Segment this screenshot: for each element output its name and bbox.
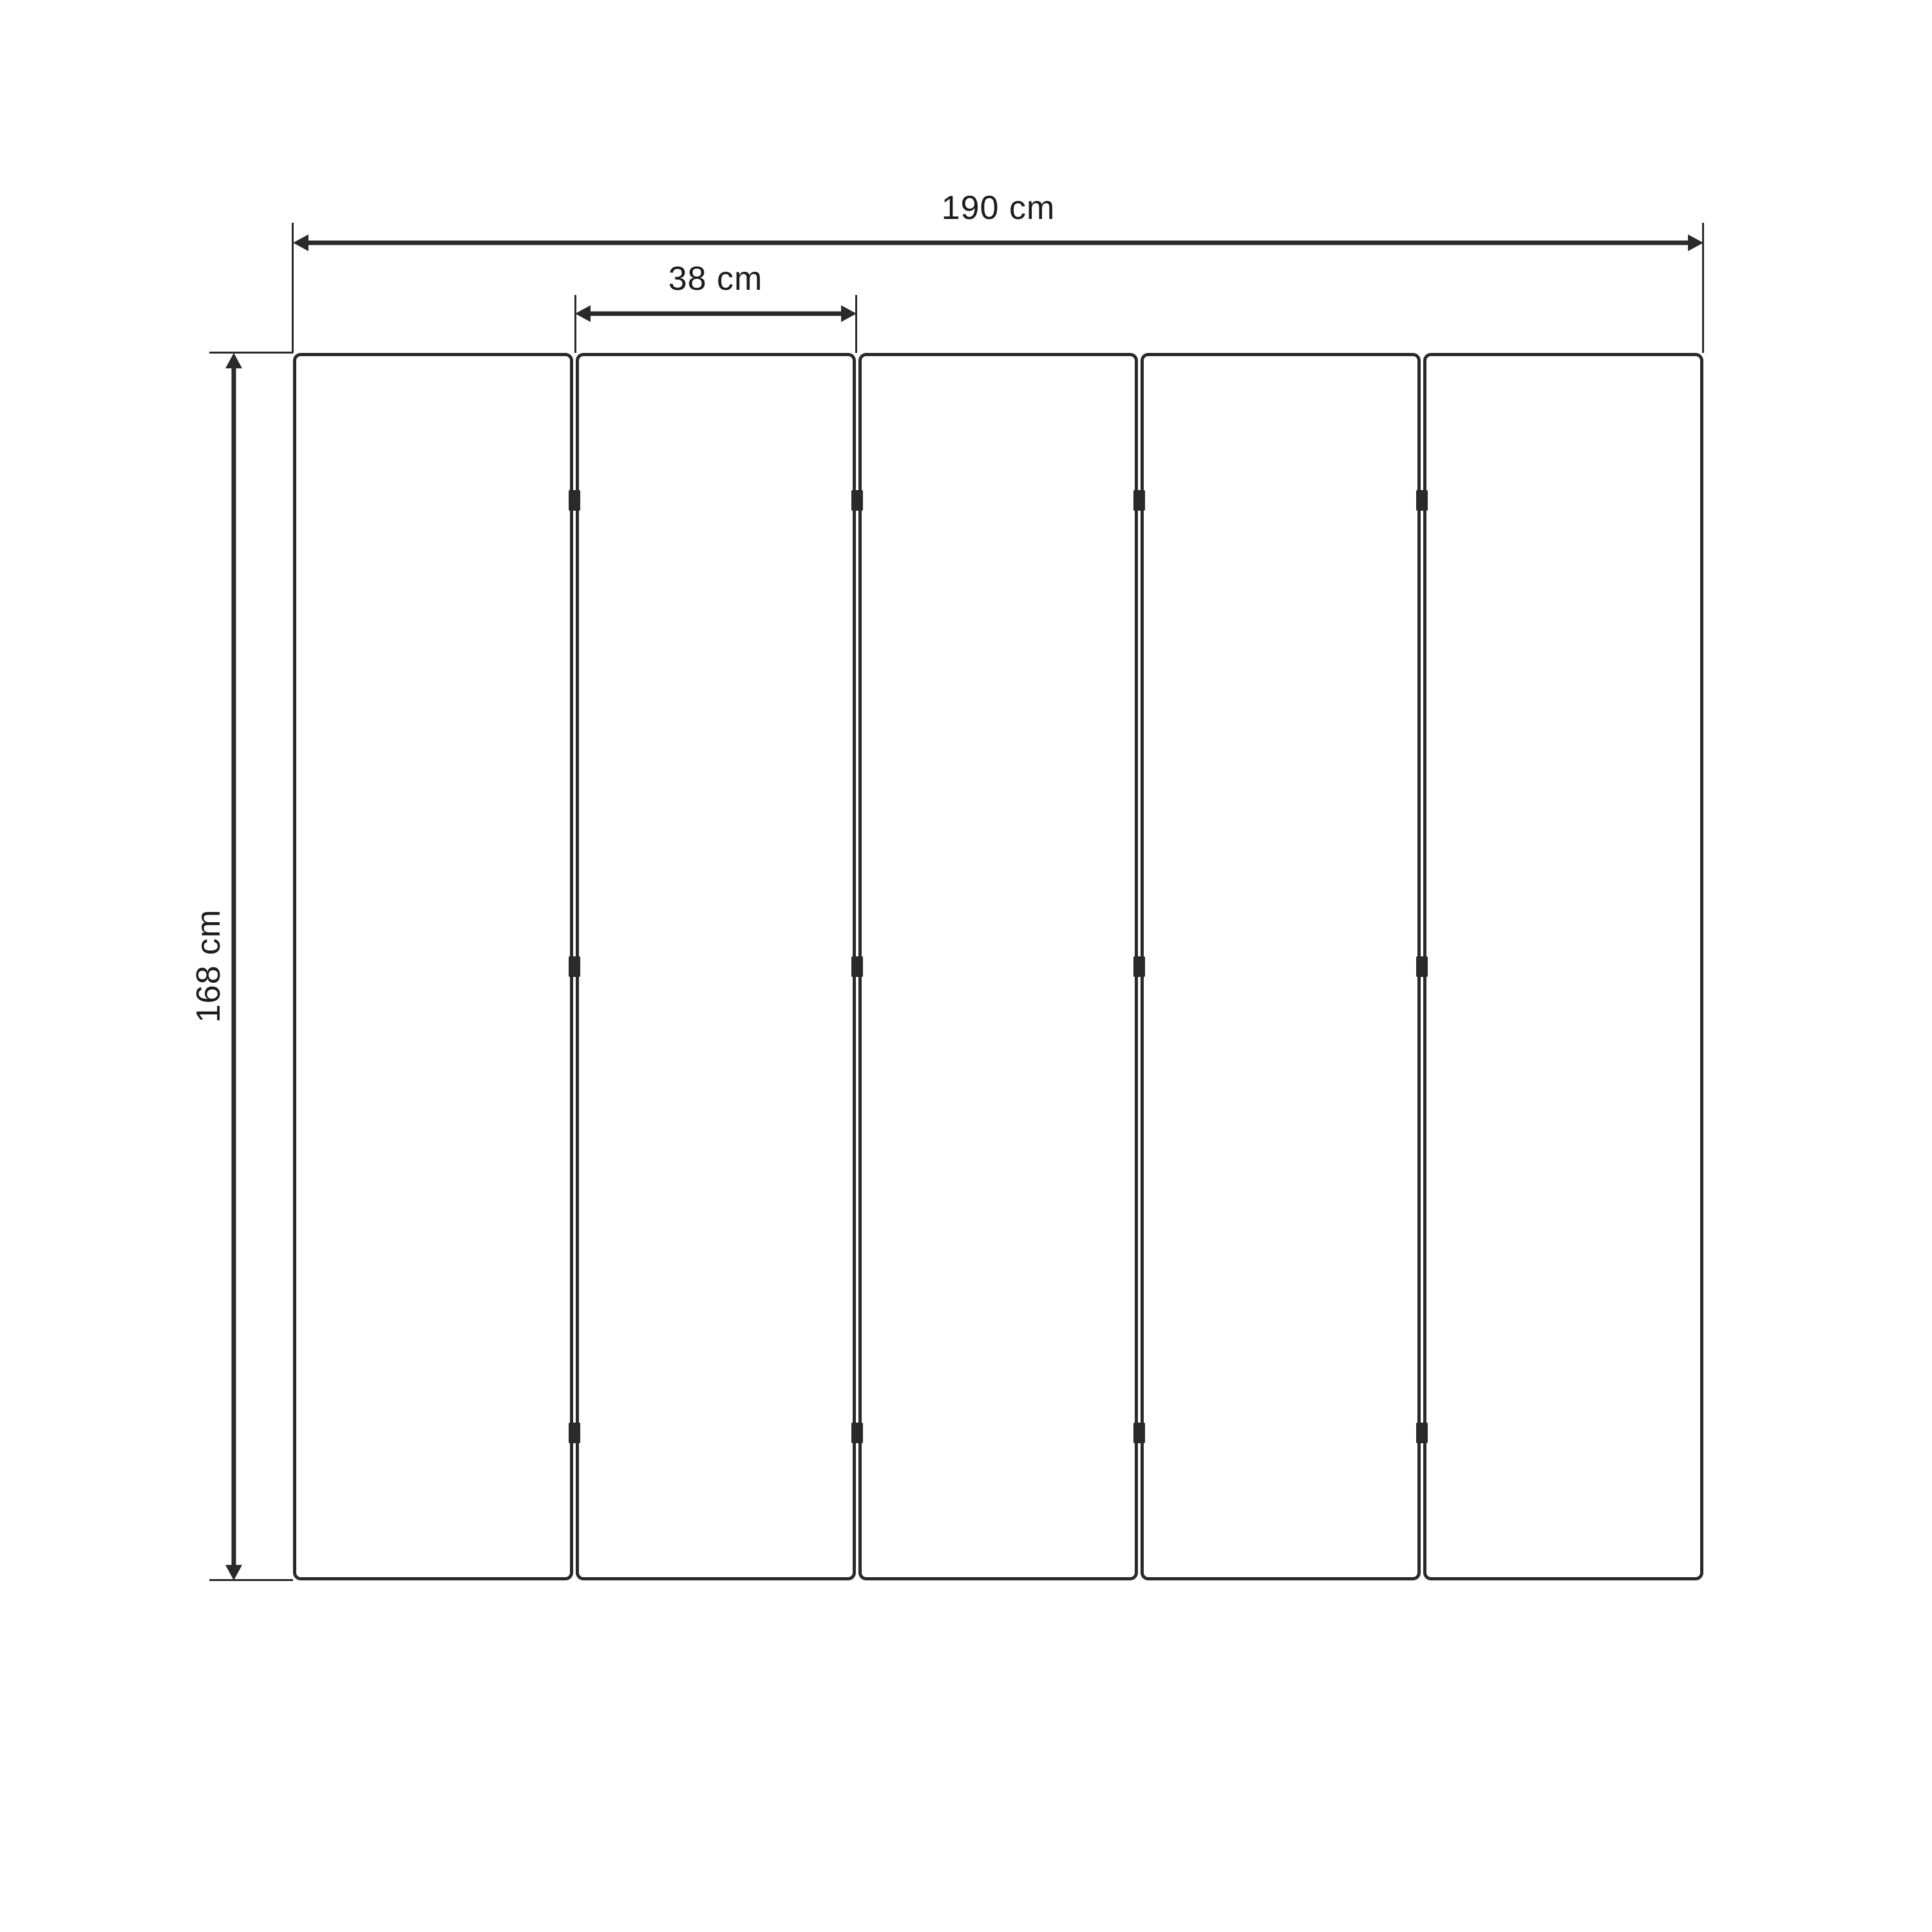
total-width-dimension-line: [293, 232, 1703, 254]
hinge-column-4: [1421, 353, 1423, 1580]
arrowhead-down-icon: [225, 1565, 242, 1580]
hinge-icon: [851, 490, 863, 511]
hinge-icon: [851, 956, 863, 977]
extension-line-total-right: [1702, 223, 1704, 353]
panel-width-label: 38 cm: [554, 260, 876, 298]
hinge-icon: [1133, 1423, 1145, 1443]
panel-3: [858, 353, 1139, 1580]
height-dimension-line: [223, 353, 245, 1580]
arrowhead-right-icon: [1688, 234, 1703, 251]
hinge-icon: [1416, 956, 1428, 977]
hinge-icon: [569, 490, 580, 511]
hinge-icon: [851, 1423, 863, 1443]
hinge-icon: [1133, 490, 1145, 511]
extension-line-height-top: [209, 352, 293, 354]
hinge-icon: [1133, 956, 1145, 977]
panel-4: [1141, 353, 1421, 1580]
hinge-icon: [1416, 1423, 1428, 1443]
panel-2: [576, 353, 856, 1580]
dimension-bar: [232, 365, 236, 1569]
panel-1: [293, 353, 573, 1580]
dimension-bar: [587, 312, 845, 316]
extension-line-panel-left: [574, 295, 576, 353]
hinge-column-2: [856, 353, 858, 1580]
hinge-column-3: [1138, 353, 1141, 1580]
dimension-drawing: 190 cm 38 cm 168 cm: [0, 0, 1932, 1932]
hinge-icon: [1416, 490, 1428, 511]
extension-line-height-bottom: [209, 1579, 293, 1581]
hinge-icon: [569, 956, 580, 977]
arrowhead-right-icon: [841, 305, 857, 322]
hinge-icon: [569, 1423, 580, 1443]
panel-group: [293, 353, 1703, 1580]
total-width-label: 190 cm: [741, 189, 1256, 227]
panel-5: [1423, 353, 1703, 1580]
dimension-bar: [305, 241, 1692, 245]
extension-line-panel-right: [855, 295, 857, 353]
hinge-column-1: [573, 353, 576, 1580]
extension-line-total-left: [292, 223, 294, 353]
panel-width-dimension-line: [575, 303, 857, 325]
